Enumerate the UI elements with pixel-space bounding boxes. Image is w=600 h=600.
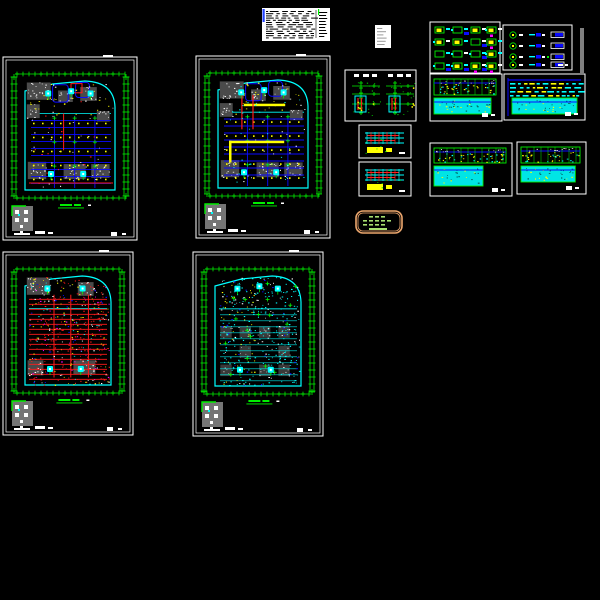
- key-plan-block: [202, 402, 223, 431]
- key-plan-block: [12, 206, 33, 235]
- symbol-legend-panel-2[interactable]: [503, 25, 572, 70]
- stamp-bubble[interactable]: [356, 211, 402, 233]
- symbol-legend-panel-1[interactable]: [430, 22, 502, 73]
- drawing-layer: [0, 0, 600, 600]
- sheet-title-mark: [58, 204, 91, 208]
- key-plan-block: [12, 401, 33, 430]
- floorplan-sheet-1[interactable]: [3, 55, 137, 240]
- floorplan-sheet-3[interactable]: [3, 250, 133, 435]
- sheet-title-mark: [246, 400, 279, 404]
- riser-detail-panel[interactable]: [345, 70, 416, 121]
- floorplan-sheet-4[interactable]: [193, 250, 323, 436]
- equipment-schedule-3[interactable]: [430, 143, 512, 196]
- equipment-schedule-4[interactable]: [517, 142, 586, 194]
- sheet-title-mark: [251, 202, 284, 206]
- sheet-title-mark: [56, 399, 89, 403]
- section-detail-panel-a[interactable]: [359, 125, 411, 158]
- cad-model-space[interactable]: [0, 0, 600, 600]
- vertical-divider-line: [581, 28, 583, 73]
- floorplan-sheet-2[interactable]: [196, 54, 330, 238]
- section-detail-panel-b[interactable]: [359, 162, 411, 196]
- equipment-schedule-1[interactable]: [430, 74, 502, 121]
- equipment-schedule-2[interactable]: [504, 74, 585, 120]
- general-notes-block[interactable]: [262, 8, 330, 41]
- key-plan-block: [205, 204, 226, 233]
- small-detail-card[interactable]: [375, 25, 391, 48]
